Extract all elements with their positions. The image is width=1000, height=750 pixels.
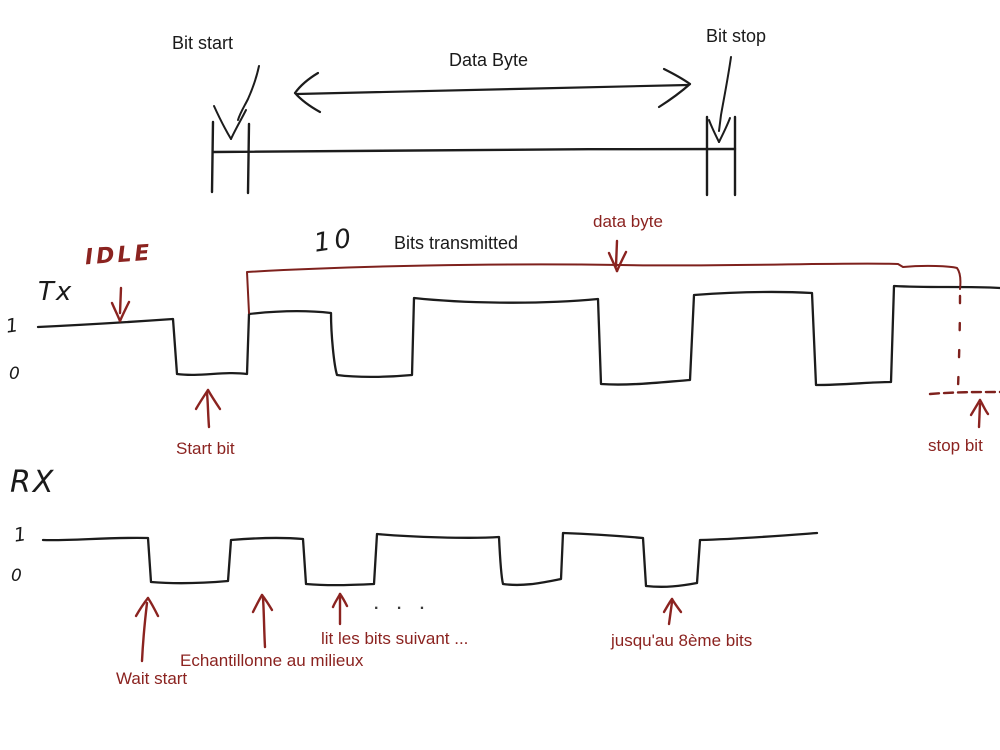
idle-arrow xyxy=(112,288,129,321)
bits-transmitted-label: Bits transmitted xyxy=(394,234,518,254)
rx-waveform xyxy=(43,533,817,587)
rx-sample-middle-label: Echantillonne au milieux xyxy=(180,652,363,671)
tx-annotation-arrows xyxy=(112,241,988,427)
tx-stop-bit-label: stop bit xyxy=(928,437,983,456)
bit-start-label: Bit start xyxy=(172,34,233,54)
tx-stop-dashed-vertical xyxy=(958,296,960,388)
tx-line-label: Tx xyxy=(38,278,73,307)
ruler-baseline xyxy=(213,149,735,152)
tx-start-bit-label: Start bit xyxy=(176,440,235,459)
stop-bit-arrow xyxy=(971,400,988,427)
data-byte-top-label: Data Byte xyxy=(449,51,528,71)
start-bit-arrow xyxy=(196,390,220,427)
rx-until-eighth-bit-label: jusqu'au 8ème bits xyxy=(611,632,752,651)
ruler-tick-start-right xyxy=(248,124,249,193)
tx-bits-count: 10 xyxy=(312,224,357,258)
bit-stop-arrow xyxy=(709,57,731,142)
eighth-bit-arrow xyxy=(664,599,681,624)
rx-level-low: 0 xyxy=(11,567,22,586)
byte-ruler xyxy=(212,117,735,195)
data-byte-span-arrow xyxy=(295,69,690,112)
bit-stop-label: Bit stop xyxy=(706,27,766,47)
tx-data-byte-label: data byte xyxy=(593,213,663,232)
wait-start-arrow xyxy=(136,598,158,661)
tx-level-low: 0 xyxy=(9,365,20,384)
tx-data-byte-overline xyxy=(247,264,1000,394)
rx-ellipsis: . . . xyxy=(374,596,431,614)
rx-read-next-bits-label: lit les bits suivant ... xyxy=(321,630,468,649)
tx-stop-dashed-horizontal xyxy=(930,392,1000,394)
rx-line-label: RX xyxy=(10,466,55,499)
read-next-bits-arrow xyxy=(333,594,347,624)
sample-middle-arrow xyxy=(253,595,272,647)
uart-handdrawn-diagram: Bit start Data Byte Bit stop 10 Bits tra… xyxy=(0,0,1000,750)
data-byte-arrow xyxy=(609,241,626,271)
tx-waveform xyxy=(38,286,1000,385)
bit-start-arrow xyxy=(214,66,259,139)
rx-wait-start-label: Wait start xyxy=(116,670,187,689)
sketch-strokes xyxy=(0,0,1000,750)
tx-idle-label: IDLE xyxy=(84,242,153,271)
ruler-tick-start-left xyxy=(212,122,213,192)
